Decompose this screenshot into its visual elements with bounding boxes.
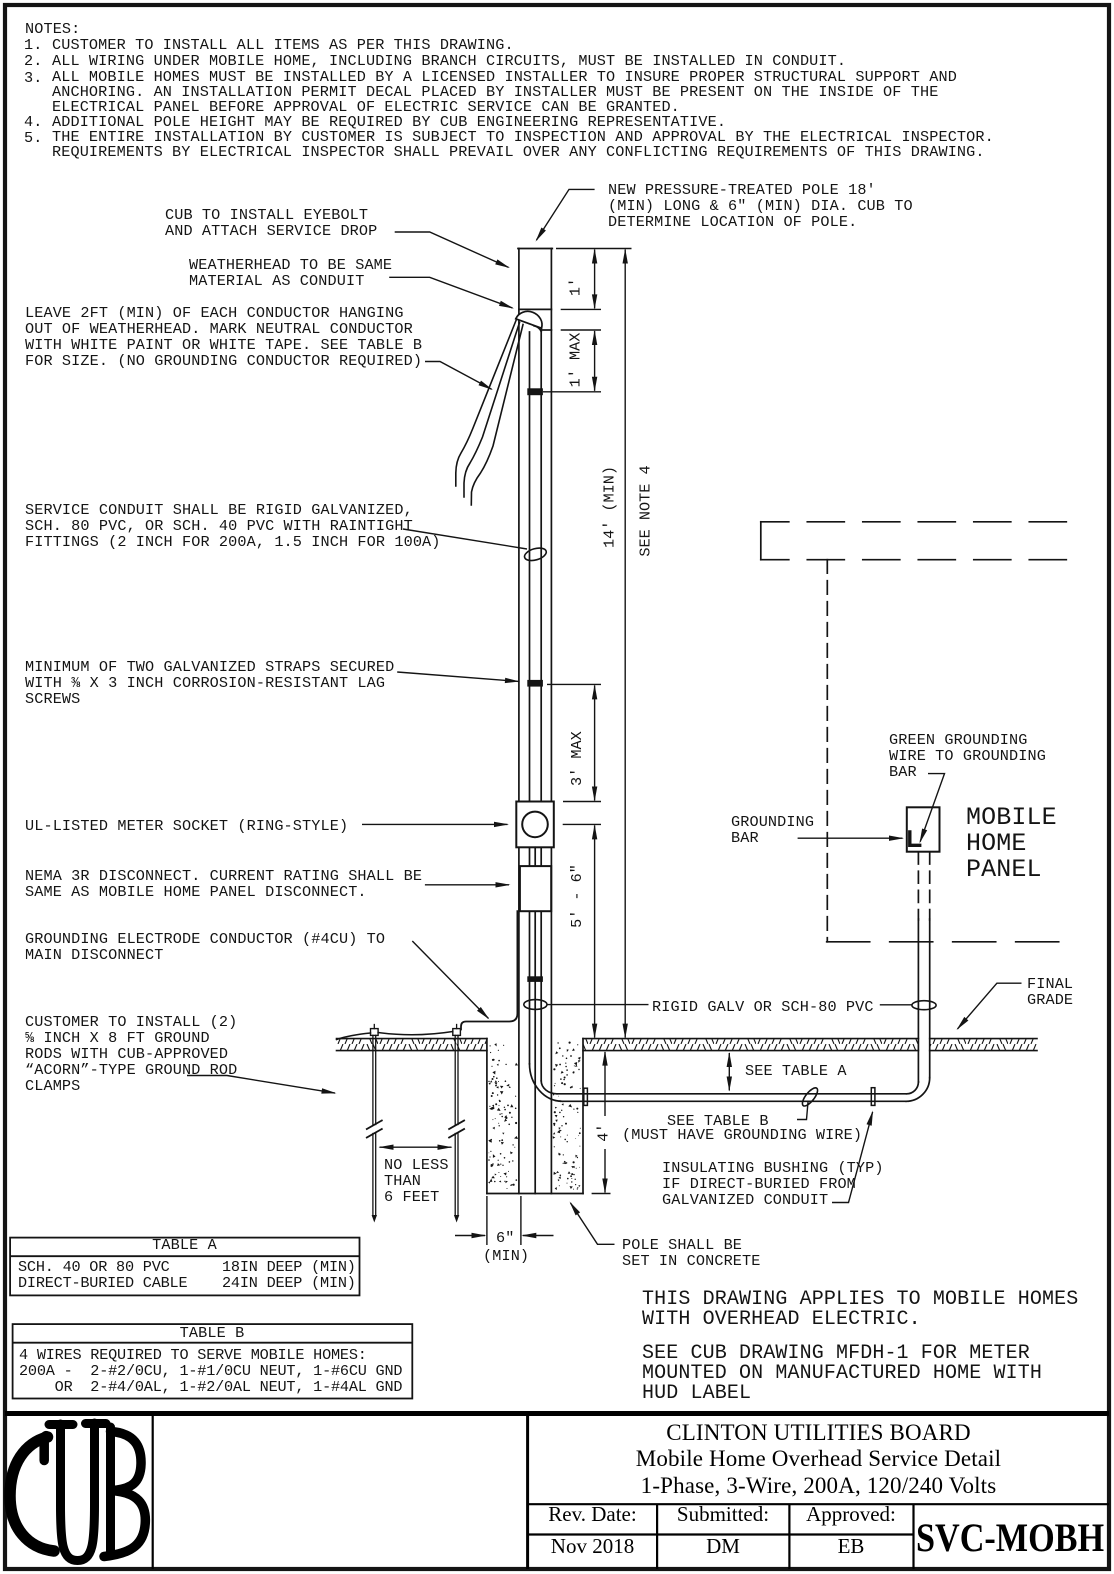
svg-text:4': 4'	[595, 1124, 613, 1142]
svg-text:5' - 6″: 5' - 6″	[568, 864, 586, 928]
svg-text:1' MAX: 1' MAX	[567, 333, 585, 388]
svg-text:14' (MIN): 14' (MIN)	[601, 466, 619, 548]
svg-text:3' MAX: 3' MAX	[568, 731, 586, 786]
svg-text:1': 1'	[567, 278, 585, 296]
svg-text:SEE NOTE 4: SEE NOTE 4	[637, 465, 655, 556]
